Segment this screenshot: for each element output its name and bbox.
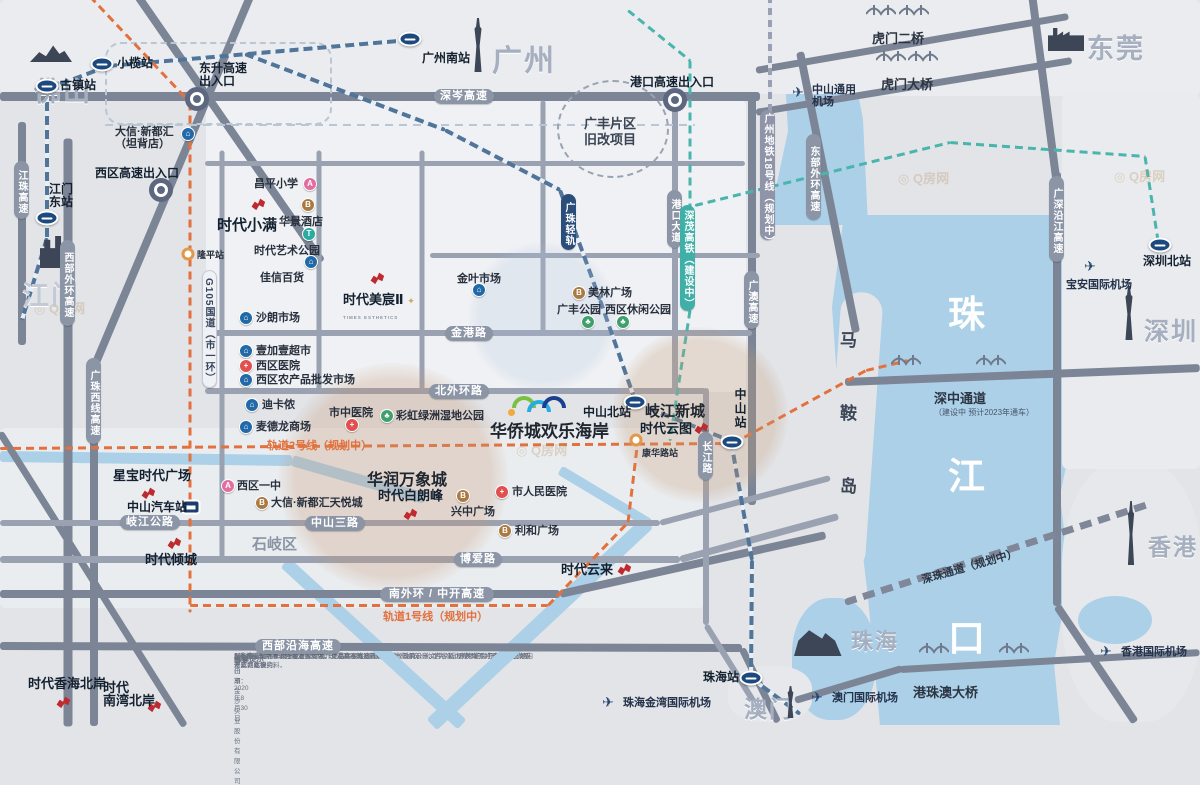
district-label: 华润万象城: [367, 466, 447, 490]
poi-label: 麦德龙商场: [256, 421, 311, 433]
hosp-poi-icon: +: [345, 418, 359, 432]
project-label: 时代白朗峰: [378, 489, 443, 502]
hosp-poi-icon: +: [239, 359, 253, 373]
poi-label: 迪卡侬: [262, 399, 295, 411]
airport-label: 香港国际机场: [1121, 646, 1187, 658]
poi-label: 广丰公园: [557, 304, 601, 316]
planned-station-icon: [182, 248, 195, 261]
poi-label: 壹加壹超市: [256, 345, 311, 357]
rail-name-pill: 广珠轻轨: [561, 194, 576, 250]
station-icon: [91, 57, 114, 72]
shop-poi-icon: ⌂: [304, 255, 318, 269]
planned-line: [189, 102, 192, 612]
made-date: 制作日期：2020年8月30日: [234, 655, 248, 722]
station-icon: [740, 671, 763, 686]
city-road: [420, 150, 425, 392]
poi-label: 西区一中: [237, 480, 281, 492]
road-name-pill: 金港路: [445, 326, 493, 341]
station-label: 深圳北站: [1143, 255, 1191, 268]
park-poi-icon: ♣: [380, 409, 394, 423]
station-label: 小榄站: [117, 57, 153, 70]
shop-poi-icon: ⌂: [239, 373, 253, 387]
road-name-pill: 西部沿海高速: [255, 639, 341, 654]
highlight-zone: [468, 242, 618, 392]
airport-label: 宝安国际机场: [1066, 279, 1132, 291]
project-label: 星宝时代广场: [113, 469, 191, 482]
airport-label: 珠海金湾国际机场: [623, 697, 711, 709]
station-label: 广州南站: [422, 52, 470, 65]
road-name-pill: 长江路: [698, 432, 713, 480]
poi-label: 美林广场: [588, 287, 632, 299]
road-name-pill: 西部外环高速: [60, 240, 75, 326]
rail-name-pill: 广州地铁18号线（规划中）: [760, 110, 775, 240]
project-label: 时代小满: [217, 219, 277, 232]
road-name-pill: 南外环 / 中开高速: [380, 587, 494, 602]
poi-label: 兴中广场: [451, 506, 495, 518]
oct-waves-icon: [542, 396, 566, 408]
district-label: 岐江新城: [645, 400, 705, 421]
poi-label: 佳信百货: [260, 272, 304, 284]
project-label: 时代美宸Ⅱ ✦TIMES ESTHETICS: [343, 293, 415, 324]
park-poi-icon: ♣: [581, 315, 595, 329]
airport-icon: ✈: [792, 85, 804, 99]
interchange-icon: [149, 178, 173, 202]
poi-label: 西区农产品批发市场: [256, 374, 355, 386]
shop-poi-icon: ⌂: [239, 344, 253, 358]
rail-name-pill: 深茂高铁（建设中）: [680, 205, 695, 311]
poi-label: 彩虹绿洲湿地公园: [396, 410, 484, 422]
road-name-pill: 广珠西线高速: [86, 358, 101, 444]
park-poi-icon: ♣: [616, 315, 630, 329]
airport-icon: ✈: [811, 690, 823, 704]
city-road: [430, 253, 760, 258]
city-label: 广州: [492, 36, 556, 80]
redevelopment-zone-label: 广丰片区旧改项目: [584, 116, 636, 148]
metro-poi-icon: T: [302, 227, 316, 241]
poi-label: 市中医院: [329, 407, 373, 419]
hotel-poi-icon: B: [301, 198, 315, 212]
project-label: 时代南湾北岸: [103, 681, 155, 707]
station-label: 中山站: [733, 388, 746, 430]
project-label: 时代云来: [561, 563, 613, 576]
poi-label: 利和广场: [515, 525, 559, 537]
map-label: 轨道2号线（规划中）: [267, 437, 372, 453]
project-label: 时代云图: [640, 422, 692, 435]
area-name-char: 鞍: [840, 399, 857, 424]
road-name-pill: 中山三路: [305, 516, 365, 531]
shop-poi-icon: ⌂: [239, 420, 253, 434]
hotel-poi-icon: B: [498, 524, 512, 538]
airport-icon: ✈: [1100, 644, 1112, 658]
road-name-pill: 北外环路: [429, 384, 489, 399]
poi-label: 昌平小学: [254, 178, 298, 190]
station-label: 古镇站: [60, 79, 96, 92]
interchange-label: 港口高速出入口: [630, 76, 714, 89]
airport-label: 中山通用机场: [812, 84, 856, 108]
city-label: 珠海: [851, 624, 899, 656]
poi-label: 西区医院: [256, 360, 300, 372]
road-name-pill: 岐江公路: [120, 515, 180, 530]
map-label: 虎门二桥: [872, 28, 924, 47]
airport-icon: ✈: [602, 695, 614, 709]
interchange-label: 西区高速出入口: [95, 167, 179, 180]
disclaimer-line: 2.若本模型所展示内容发生变化，开发商不再另行通知。: [234, 653, 395, 662]
station-label: 珠海站: [703, 671, 739, 684]
poi-label: 沙朗市场: [256, 312, 300, 324]
station-icon: [36, 79, 59, 94]
highway-road: [0, 642, 742, 652]
project-label: 时代倾城: [145, 553, 197, 566]
poi-label: 金叶市场: [457, 273, 501, 285]
shop-poi-icon: ⌂: [245, 398, 259, 412]
road-name-pill: 广深沿江高速: [1049, 176, 1064, 262]
road-name-pill: 东部外环高速: [806, 134, 821, 220]
city-road: [220, 150, 225, 560]
city-label: 澳门: [744, 690, 794, 724]
city-road: [205, 161, 745, 166]
road-name-pill: 深岑高速: [434, 89, 494, 104]
district-label: 华侨城欢乐海岸: [490, 417, 609, 442]
shop-poi-icon: ⌂: [181, 127, 195, 141]
hongkong-bay: [1078, 596, 1152, 644]
sparkle-icon: ✦: [407, 296, 415, 306]
map-label: 虎门大桥: [881, 74, 933, 93]
project-label: 时代香海北岸: [28, 677, 106, 690]
poi-label: 市人民医院: [512, 486, 567, 498]
highway-road: [64, 138, 73, 726]
poi-label: 西区休闲公园: [605, 304, 671, 316]
poi-label: 华景酒店: [279, 216, 323, 228]
map-label: 港珠澳大桥: [913, 682, 978, 701]
school-poi-icon: A: [303, 177, 317, 191]
poi-label: 大信·新都汇（坦背店）: [115, 126, 174, 150]
poi-label: 大信·新都汇天悦城: [271, 497, 363, 509]
hosp-poi-icon: +: [495, 485, 509, 499]
district-label: 石岐区: [252, 533, 297, 554]
watermark: ◎ Q房网: [1114, 166, 1165, 185]
planned-line: [190, 604, 548, 607]
shop-poi-icon: ⌂: [472, 283, 486, 297]
map-label: 深中通道（建设中 预计2023年通车）: [934, 388, 986, 407]
city-label: 深圳: [1144, 312, 1198, 348]
airport-label: 澳门国际机场: [832, 692, 898, 704]
station-label: 江门东站: [49, 183, 73, 209]
area-name-char: 口: [948, 608, 985, 662]
station-icon: [399, 32, 422, 47]
watermark: ◎ Q房网: [516, 440, 567, 459]
planned-station-label: 隆平站: [197, 249, 224, 261]
hotel-poi-icon: B: [572, 286, 586, 300]
station-icon: [1149, 238, 1172, 253]
map-label: 轨道1号线（规划中）: [383, 608, 488, 624]
area-name-char: 珠: [948, 284, 985, 338]
station-icon: [721, 435, 744, 450]
school-poi-icon: A: [221, 479, 235, 493]
interchange-icon: [663, 88, 687, 112]
bus-station-label: 中山汽车站: [127, 501, 187, 514]
shop-poi-icon: ⌂: [239, 311, 253, 325]
location-map: 时代美宸 TIMES ESTHETICS ✦ N E S W 温馨提示 1.本模…: [0, 0, 1200, 720]
oct-dot-icon: [508, 409, 515, 416]
intercity-rail-line: [749, 560, 754, 678]
road-name-pill: 广澳高速: [744, 271, 759, 329]
city-road: [317, 150, 322, 392]
station-icon: [36, 211, 59, 226]
interchange-icon: [185, 87, 209, 111]
hotel-poi-icon: B: [255, 496, 269, 510]
airport-icon: ✈: [1084, 259, 1096, 273]
city-label: 东莞: [1087, 27, 1145, 66]
road-name-pill: 博爱路: [454, 552, 502, 567]
hotel-poi-icon: B: [456, 489, 470, 503]
area-name-char: 岛: [840, 472, 857, 497]
interchange-label: 东升高速出入口: [199, 62, 247, 88]
road-name-pill: G105国道（市一环）: [202, 270, 217, 388]
city-label: 香港: [1148, 528, 1198, 562]
road-name-pill: 江珠高速: [14, 161, 29, 219]
planned-station-label: 康华路站: [642, 447, 678, 459]
area-name-char: 江: [948, 446, 985, 500]
watermark: ◎ Q房网: [898, 168, 949, 187]
area-name-char: 马: [840, 326, 857, 351]
